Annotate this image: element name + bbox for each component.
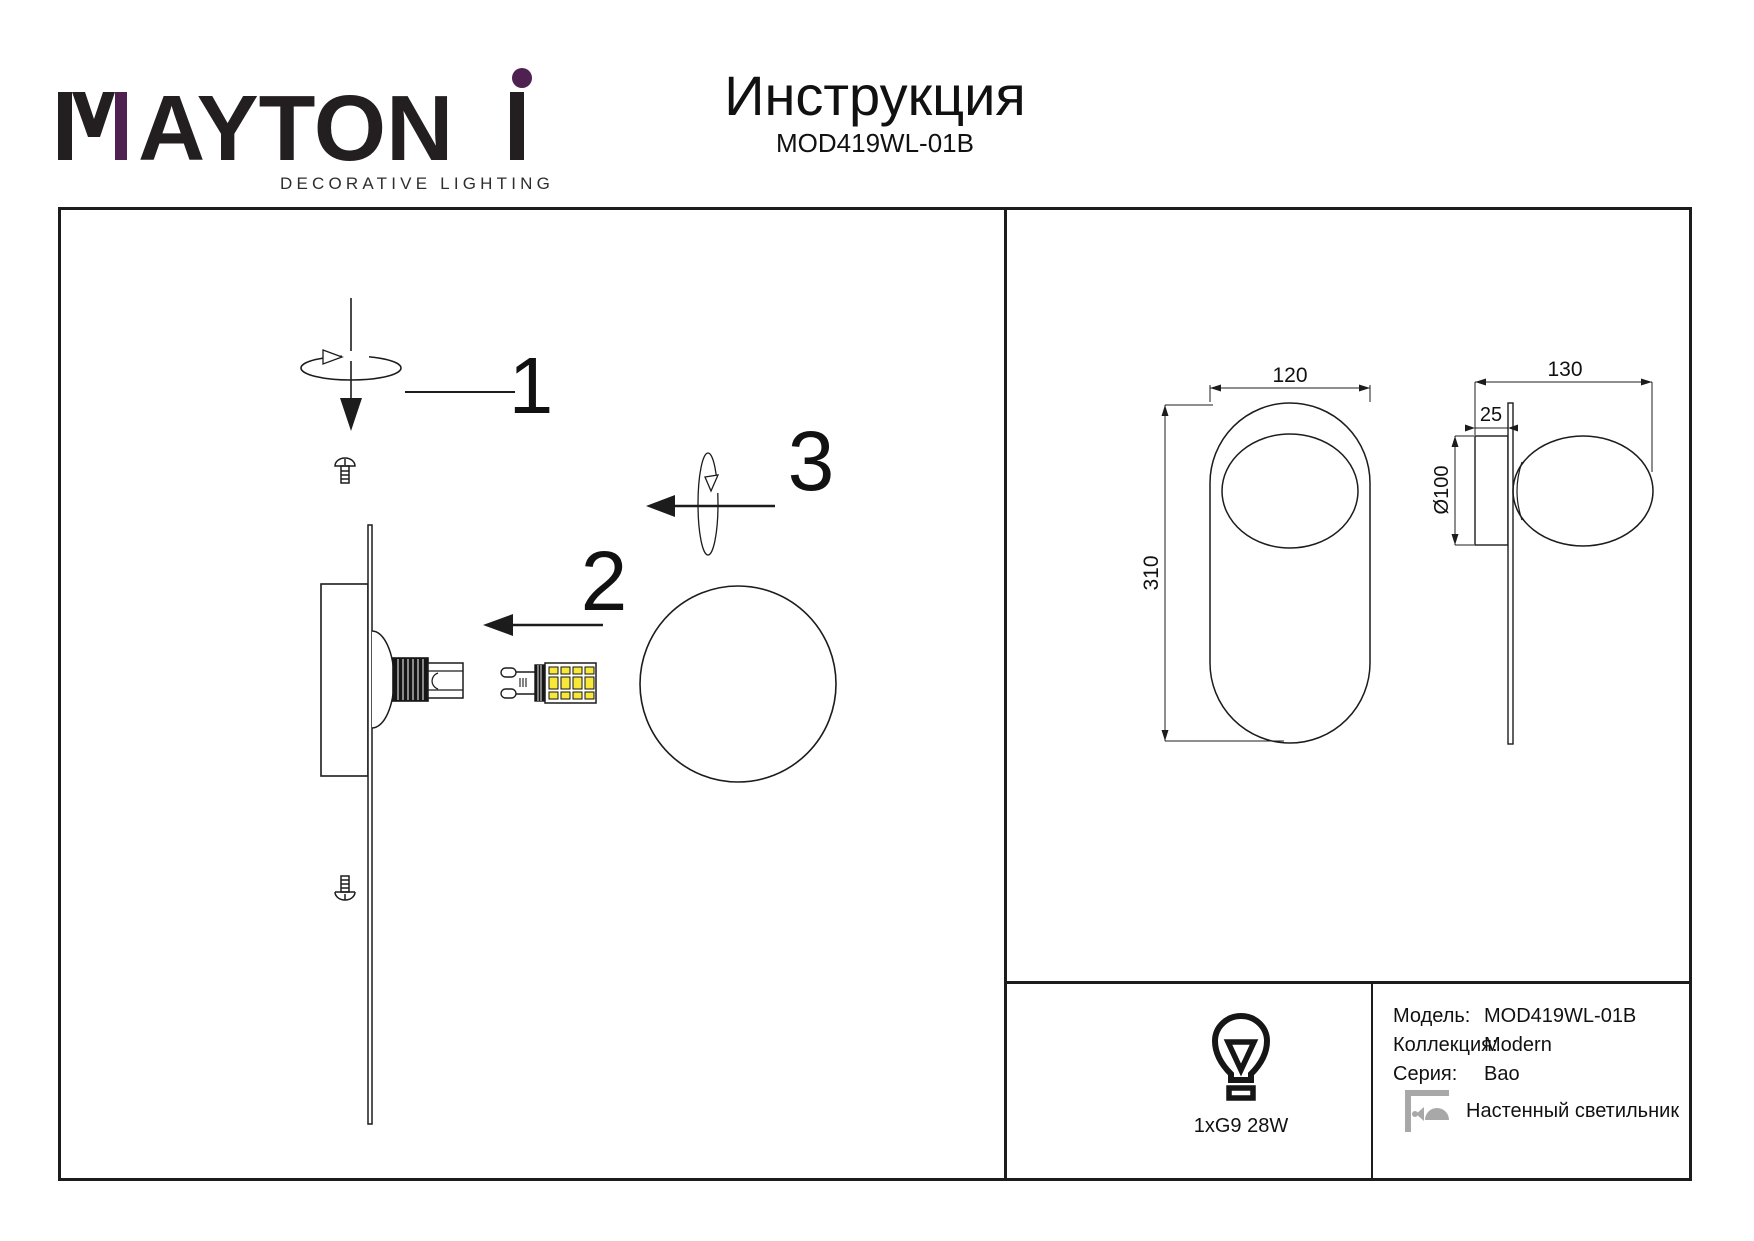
side-view: 130 25 Ø100 (1431, 358, 1653, 744)
spec-collection-value: Modern (1484, 1031, 1552, 1060)
step1-number: 1 (509, 341, 554, 430)
spec-series-label: Серия: (1393, 1060, 1484, 1089)
logo-letter-i (510, 92, 524, 160)
spec-row-type: Настенный светильник (1393, 1089, 1689, 1133)
logo-letters-ayton: AYTON (138, 76, 453, 180)
title-block: Инструкция MOD419WL-01B (640, 66, 1110, 158)
step3-number: 3 (788, 414, 835, 508)
spec-row-model: Модель: MOD419WL-01B (1393, 1002, 1689, 1031)
assembly-diagram: 1 (61, 210, 1004, 1178)
step3-arrow-icon (646, 495, 775, 517)
rotation-axis-icon (301, 298, 401, 431)
g9-bulb-icon (501, 663, 596, 703)
spec-series-value: Bao (1484, 1060, 1520, 1089)
wall-panel (368, 525, 372, 1124)
spec-type-value: Настенный светильник (1466, 1089, 1679, 1133)
spec-model-value: MOD419WL-01B (1484, 1002, 1636, 1031)
dimension-drawing: 120 310 130 (1007, 210, 1689, 981)
mount-box (321, 584, 368, 776)
lamp-spec-caption: 1xG9 28W (1194, 1115, 1288, 1138)
spec-collection-label: Коллекция: (1393, 1031, 1484, 1060)
page-model-number: MOD419WL-01B (640, 128, 1110, 158)
logo-purple-dot-icon (512, 68, 532, 88)
dim-sphere-diameter: Ø100 (1431, 466, 1453, 515)
dim-front-width: 120 (1272, 364, 1307, 387)
lamp-spec-cell: 1xG9 28W (1007, 984, 1373, 1181)
logo-letter-m (58, 92, 115, 160)
spec-model-label: Модель: (1393, 1002, 1484, 1031)
assembly-diagram-panel: 1 (58, 207, 1007, 1181)
canopy-dome (372, 631, 394, 728)
step3-rotation-icon (698, 453, 720, 555)
dim-side-depth: 130 (1547, 358, 1582, 381)
spec-row-collection: Коллекция: Modern (1393, 1031, 1689, 1060)
wall-lamp-icon (1405, 1090, 1449, 1132)
lamp-socket-icon (393, 658, 463, 701)
step2-number: 2 (581, 534, 628, 628)
dim-front-height: 310 (1140, 555, 1163, 590)
logo-purple-stem (115, 92, 127, 160)
glass-sphere (640, 586, 836, 782)
page-title: Инструкция (640, 66, 1110, 126)
front-view: 120 310 (1140, 364, 1370, 743)
spec-rows: Модель: MOD419WL-01B Коллекция: Modern С… (1373, 984, 1689, 1181)
screw-bottom-icon (335, 876, 355, 900)
dim-plate-depth: 25 (1480, 404, 1502, 426)
spec-row-series: Серия: Bao (1393, 1060, 1689, 1089)
logo-tagline: DECORATIVE LIGHTING (280, 174, 554, 194)
bulb-icon (1211, 1012, 1271, 1102)
dimensions-panel: 120 310 130 (1007, 207, 1692, 1181)
screw-top-icon (335, 458, 355, 483)
spec-table: 1xG9 28W Модель: MOD419WL-01B Коллекция:… (1007, 981, 1689, 1181)
